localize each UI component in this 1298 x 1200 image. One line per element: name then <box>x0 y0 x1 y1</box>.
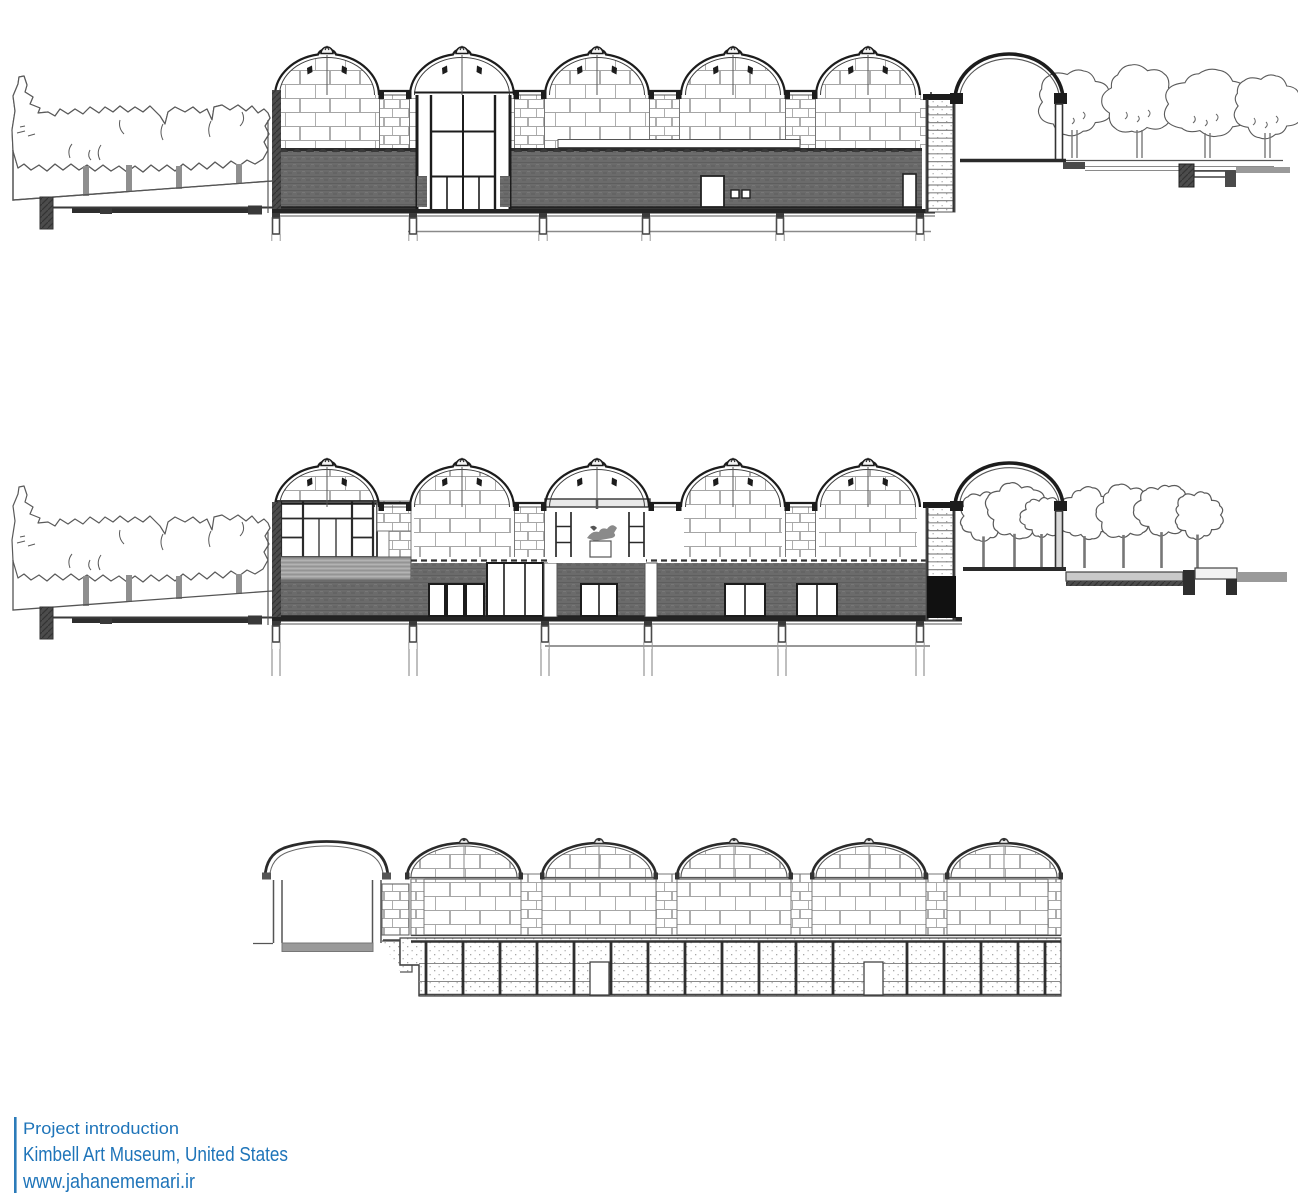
svg-text:www.jahanememari.ir: www.jahanememari.ir <box>22 1170 195 1193</box>
svg-text:Project introduction: Project introduction <box>23 1119 179 1138</box>
svg-text:Kimbell Art Museum, United Sta: Kimbell Art Museum, United States <box>23 1143 288 1166</box>
